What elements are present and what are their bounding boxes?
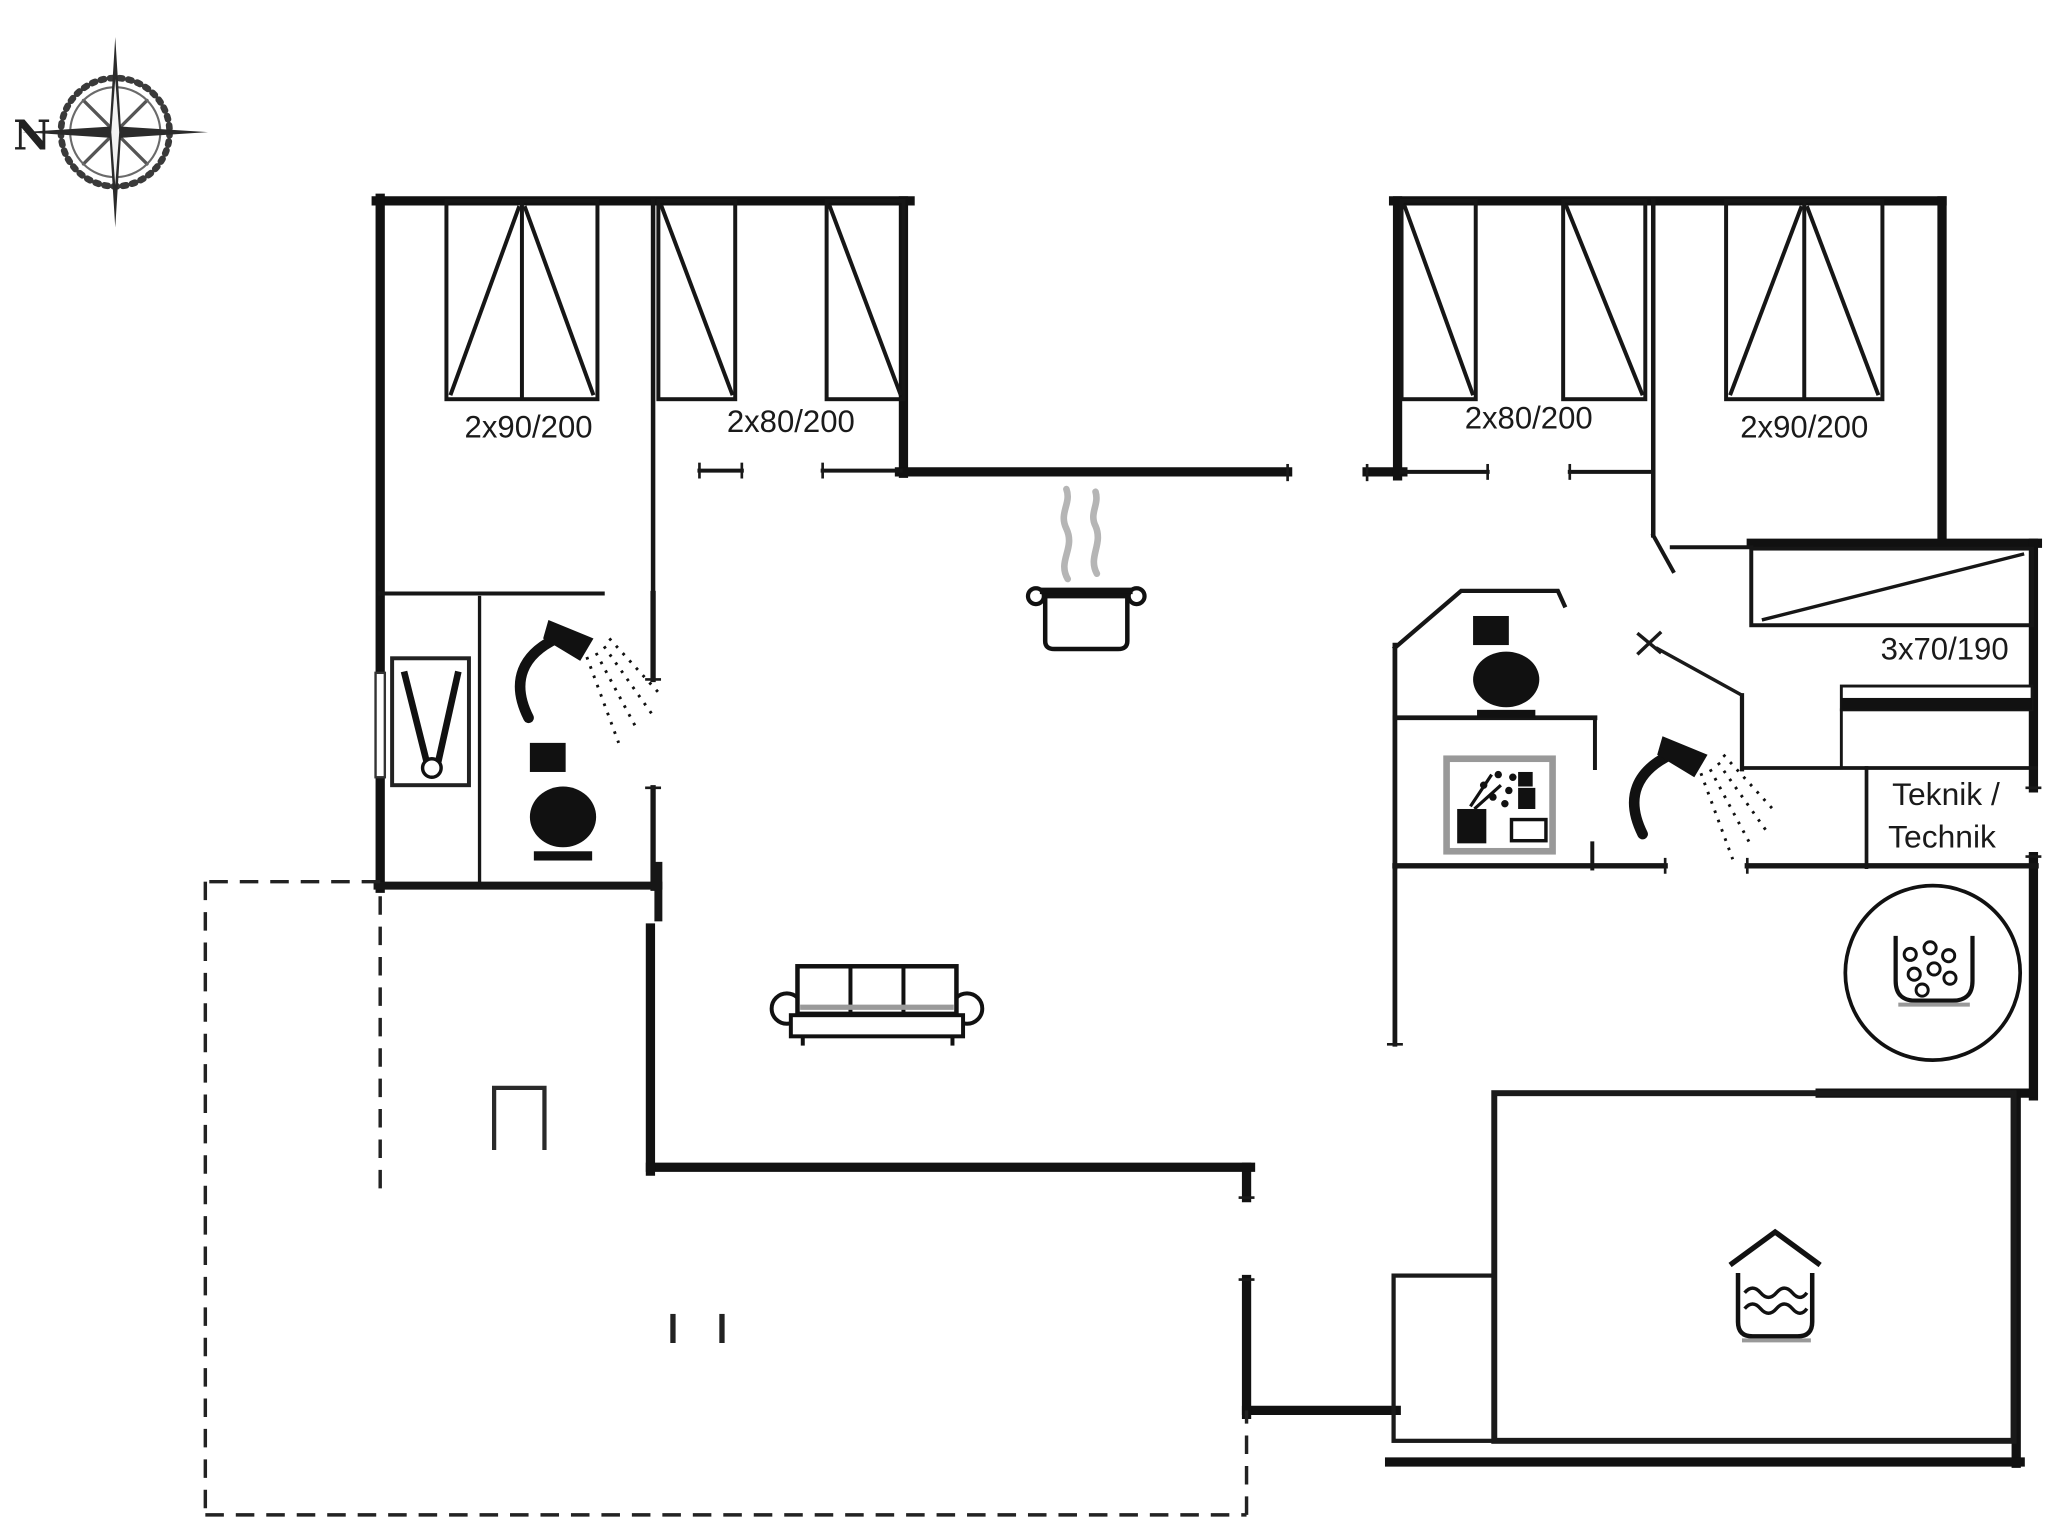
washing-machine-icon [1447, 759, 1553, 852]
bed-label-left-double: 2x90/200 [465, 410, 593, 445]
terrace-dashed-outline [205, 882, 1246, 1515]
toilet-icon-left [530, 743, 596, 861]
shower-icon-right [1634, 736, 1775, 859]
beds-single-right [1402, 201, 1646, 399]
stove-pot-icon [1028, 489, 1145, 649]
floorplan-page: N [0, 0, 2048, 1536]
bed-label-right-double: 2x90/200 [1740, 410, 1868, 445]
terrace-step-ticks [673, 1314, 722, 1343]
whirlpool-icon [1845, 886, 2020, 1060]
bed-double-right [1726, 201, 1882, 399]
bed-label-right-singles: 2x80/200 [1465, 400, 1593, 435]
door-leaf [1637, 632, 1742, 695]
bed-label-left-singles: 2x80/200 [727, 404, 855, 439]
toilet-icon-right [1473, 616, 1539, 718]
floorplan-drawing: N [0, 0, 2048, 1536]
fireplace-icon [494, 1088, 544, 1150]
bed-double-left [446, 201, 597, 399]
wardrobe [1841, 686, 2032, 710]
bed-closet-3x70 [1751, 549, 2032, 626]
pool-room [1394, 1093, 2014, 1441]
bed-label-closet: 3x70/190 [1881, 632, 2009, 667]
door-frame-caps [645, 463, 2041, 1280]
shower-icon-left [520, 620, 661, 743]
spa-bath-icon [1730, 1232, 1820, 1340]
bathroom-window [376, 673, 385, 777]
sofa-icon [772, 966, 983, 1045]
technic-room-label-line2: Technik [1888, 818, 1996, 854]
washbasin-icon [392, 658, 469, 785]
technic-room-label-line1: Teknik / [1892, 776, 2000, 812]
interior-walls [378, 201, 2037, 1044]
north-label: N [13, 110, 51, 159]
beds-single-left [658, 201, 903, 399]
